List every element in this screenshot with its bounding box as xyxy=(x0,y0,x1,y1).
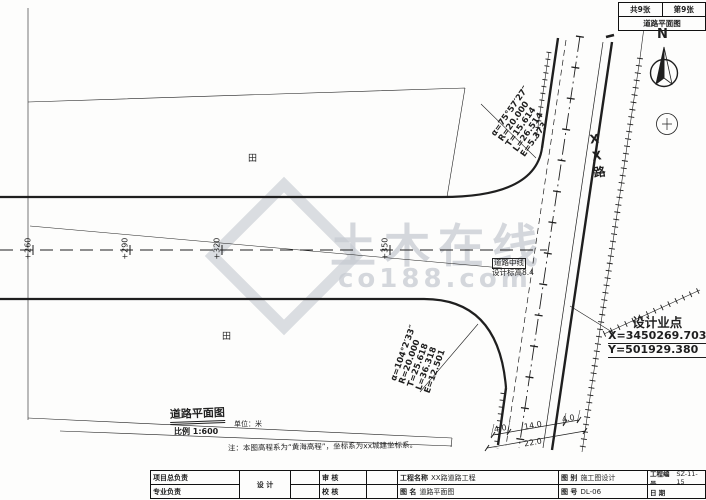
title-block-check-label: 校 核 xyxy=(320,484,366,498)
plan-caption-unit: 单位：米 xyxy=(234,420,262,428)
title-block-pro-label: 专业负责 xyxy=(151,484,239,498)
sheet-total: 共9张 xyxy=(619,3,663,16)
linework-svg xyxy=(0,0,706,500)
station-label: +290 xyxy=(120,229,129,269)
title-block-review-value xyxy=(367,471,397,484)
title-block-pm-label: 项目总负责 xyxy=(151,471,239,484)
north-label: N xyxy=(657,28,668,43)
plan-caption-scale: 比例 1:600 xyxy=(174,427,218,436)
title-block-design-value xyxy=(291,471,319,484)
cad-road-plan-drawing: { "sheet_header": { "total": "共9张", "num… xyxy=(0,0,706,500)
crossing-survey-line xyxy=(30,226,502,268)
station-label: +320 xyxy=(212,229,221,269)
legend-dash xyxy=(606,35,614,37)
plan-caption-title: 道路平面图 xyxy=(170,407,226,425)
station-label: +260 xyxy=(23,229,32,269)
title-block-review-label: 审 核 xyxy=(320,471,366,484)
title-block-check-value xyxy=(367,484,397,498)
design-point-y: Y=501929.380 xyxy=(608,344,706,358)
station-label: +350 xyxy=(380,229,389,269)
centerline-annotation-line2: 设计标高8.4 xyxy=(492,269,534,278)
design-point-title: 设计业点 xyxy=(608,316,706,330)
design-point-x: X=3450269.703 xyxy=(608,330,706,344)
title-block-name-value: 道路平面图 xyxy=(419,487,454,497)
title-block-code-label: 工程编号 xyxy=(650,471,673,484)
tree-symbol-cross xyxy=(662,118,672,130)
title-block-no-label: 图 号 xyxy=(561,487,577,497)
title-block-code-value: SZ-11-15 xyxy=(676,471,703,484)
design-point-leader xyxy=(570,306,612,332)
title-block-name-label: 图 名 xyxy=(400,487,416,497)
title-block-empty xyxy=(291,484,319,498)
main-road-top-edge xyxy=(0,148,542,197)
compass-needle-outline xyxy=(664,47,672,84)
title-block-date-label: 日 期 xyxy=(650,487,665,497)
sheet-number: 第9张 xyxy=(663,3,706,16)
title-block-design-label: 设 计 xyxy=(240,471,290,498)
upper-parcel-lines xyxy=(28,88,465,197)
title-block: 项目总负责 专业负责 设 计 审 核 校 核 工程名称 XX路道路工程 图 名 … xyxy=(150,470,706,499)
title-block-no-value: DL-06 xyxy=(580,488,601,496)
land-label-lower: 田 xyxy=(222,332,231,342)
title-block-project-label: 工程名称 xyxy=(400,473,428,483)
compass-needle-filled xyxy=(656,47,664,84)
title-block-cat-label: 图 别 xyxy=(561,473,577,483)
land-label-upper: 田 xyxy=(248,154,257,164)
centerline-annotation: 道路中线 设计标高8.4 xyxy=(492,258,534,277)
design-point-block: 设计业点 X=3450269.703 Y=501929.380 xyxy=(608,316,706,358)
title-block-cat-value: 施工图设计 xyxy=(580,473,615,483)
title-block-project-value: XX路道路工程 xyxy=(431,473,476,483)
